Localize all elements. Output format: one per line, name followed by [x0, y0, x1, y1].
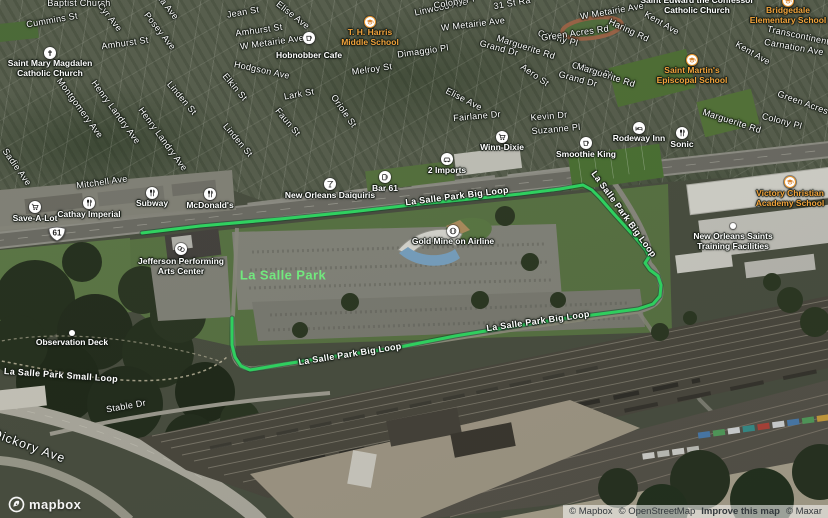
street-label-colony-pl: Colony Pl — [761, 111, 803, 131]
poi-label: T. H. HarrisMiddle School — [341, 28, 399, 47]
street-label-layer: Baptist ChurchCummins Stma AveCyr AvePos… — [0, 0, 828, 518]
street-label-sadie-ave: Sadie Ave — [1, 146, 34, 187]
street-label-31-st-ra: 31 St Ra — [493, 0, 532, 11]
attribution-link-maxar[interactable]: © Maxar — [786, 506, 822, 517]
dot-icon — [730, 223, 736, 229]
attribution-link-openstreetmap[interactable]: © OpenStreetMap — [619, 506, 696, 517]
scattered-trees — [292, 206, 828, 518]
ball-icon — [447, 225, 459, 237]
route-label-la-salle-park-big-loop: La Salle Park Big Loop — [486, 309, 591, 333]
route-label-la-salle-park-big-loop: La Salle Park Big Loop — [589, 169, 658, 259]
forest-southwest — [0, 242, 260, 466]
south-yards — [0, 386, 828, 518]
cap-icon — [364, 16, 376, 28]
street-label-linden-st: Linden St — [165, 79, 199, 117]
street-label-lark-st: Lark St — [283, 86, 315, 101]
poi-label: Cathay Imperial — [57, 210, 120, 220]
poi-label: Victory ChristianAcademy School — [756, 189, 825, 208]
sports-fields — [365, 14, 759, 191]
cross-icon — [44, 47, 56, 59]
dot-icon — [69, 330, 75, 336]
poi-label: Gold Mine on Airline — [412, 237, 494, 247]
street-label-green-acres-rd: Green Acres Rd — [776, 89, 828, 122]
commercial-strip — [0, 146, 661, 244]
railroad — [138, 296, 828, 518]
poi-label: Observation Deck — [36, 338, 108, 348]
poi-label: Winn-Dixie — [480, 143, 524, 153]
street-label-ma-ave: ma Ave — [153, 0, 180, 22]
street-label-henry-landry-ave: Henry Landry Ave — [90, 78, 143, 146]
trails — [0, 336, 228, 381]
street-label-haring-rd: Haring Rd — [607, 16, 650, 43]
mapbox-logo[interactable]: mapbox — [8, 496, 81, 513]
street-label-suzanne-pl: Suzanne Pl — [531, 122, 581, 136]
stadium — [398, 215, 494, 266]
street-label-linwood-ave: Linwood Ave — [413, 0, 468, 18]
street-label-dimaggio-pl: Dimaggio Pl — [397, 42, 450, 59]
attribution-link-improve-this-map[interactable]: Improve this map — [701, 506, 780, 517]
poi-label: Bar 61 — [372, 184, 398, 194]
street-label-w-metairie-ave: W Metairie Ave — [440, 15, 505, 33]
street-label-fairlane-dr: Fairlane Dr — [453, 109, 502, 123]
saints-facility — [675, 167, 828, 278]
street-label-colony-pl: Colony Pl — [433, 0, 475, 11]
poi-label: Subway — [136, 199, 168, 209]
poi-label: Save-A-Lot — [13, 214, 58, 224]
street-label-carnation-ave: Carnation Ave — [763, 37, 824, 57]
poi-label: New Orleans Daiquiris — [285, 191, 375, 201]
street-label-elkin-st: Elkin St — [221, 71, 250, 103]
route-outline — [142, 185, 661, 370]
attribution-link-mapbox[interactable]: © Mapbox — [569, 506, 612, 517]
poi-label: Saint Mary MagdalenCatholic Church — [8, 59, 93, 78]
street-label-oriole-st: Oriole St — [329, 93, 359, 130]
poi-label: 2 Imports — [428, 166, 466, 176]
street-label-amhurst-st: Amhurst St — [101, 35, 149, 52]
poi-layer: Save-A-LotCathay ImperialSubwayMcDonald'… — [0, 0, 828, 518]
street-label-linden-st: Linden St — [221, 121, 255, 159]
street-label-stable-dr: Stable Dr — [105, 398, 146, 415]
street-label-mitchell-ave: Mitchell Ave — [76, 173, 128, 190]
poi-label: Hobnobber Cafe — [276, 51, 342, 61]
attribution-bar: © Mapbox© OpenStreetMapImprove this map©… — [563, 505, 828, 518]
street-label-baptist-church: Baptist Church — [47, 0, 110, 8]
cart-icon — [29, 201, 41, 213]
containers — [640, 414, 828, 459]
satellite-imagery — [0, 0, 828, 518]
shield-number: 61 — [53, 229, 62, 238]
car-icon — [441, 153, 453, 165]
map-canvas[interactable]: Baptist ChurchCummins Stma AveCyr AvePos… — [0, 0, 828, 518]
street-label-transcontinental: Transcontinental — [766, 24, 828, 49]
fork-icon — [676, 127, 688, 139]
street-label-cyr-ave: Cyr Ave — [96, 1, 124, 34]
poi-label: Sonic — [670, 140, 693, 150]
street-label-dickory-ave: Dickory Ave — [0, 426, 67, 465]
mapbox-logo-icon — [8, 496, 25, 513]
street-label-elise-ave: Elise Ave — [274, 0, 311, 31]
street-label-w-metairie-ave: W Metairie Ave — [239, 33, 304, 52]
cocktail-icon — [324, 178, 336, 190]
street-label-marguerite-rd: Marguerite Rd — [701, 107, 762, 135]
beer-icon — [379, 171, 391, 183]
street-label-grand-dr: Grand Dr — [558, 69, 599, 89]
poi-label: New Orleans SaintsTraining Facilities — [693, 232, 772, 251]
residential-texture — [0, 0, 828, 518]
park-label-la-salle-park: La Salle Park — [240, 268, 326, 283]
street-label-melroy-st: Melroy St — [351, 61, 393, 77]
street-label-kevin-dr: Kevin Dr — [530, 109, 568, 122]
street-label-posey-ave: Posey Ave — [142, 10, 178, 52]
route-label-la-salle-park-small-loop: La Salle Park Small Loop — [4, 366, 119, 384]
street-label-aero-st: Aero St — [519, 62, 551, 89]
street-label-w-metairie-ave: W Metairie Ave — [579, 0, 644, 21]
street-label-cummins-st: Cummins St — [26, 11, 79, 30]
poi-label: Rodeway Inn — [613, 134, 665, 144]
route-label-la-salle-park-big-loop: La Salle Park Big Loop — [298, 341, 402, 367]
poi-label: BridgedaleElementary School — [750, 6, 827, 25]
cap-icon — [686, 54, 698, 66]
poi-label: Saint Edward the ConfessorCatholic Churc… — [640, 0, 753, 15]
poi-label: Jefferson PerformingArts Center — [138, 257, 224, 276]
street-label-amhurst-st: Amhurst St — [235, 22, 283, 39]
masks-icon — [175, 243, 187, 255]
street-label-elise-ave: Elise Ave — [444, 86, 484, 113]
street-label-grand-dr: Grand Dr — [479, 38, 520, 58]
mapbox-logo-text: mapbox — [29, 497, 81, 512]
us-61-shield: 61 — [47, 226, 67, 242]
poi-label: McDonald's — [186, 201, 233, 211]
street-label-hodgson-ave: Hodgson Ave — [233, 59, 291, 81]
fork-icon — [83, 197, 95, 209]
greens — [0, 20, 672, 346]
fork-icon — [146, 187, 158, 199]
street-label-colony-pl: Colony Pl — [571, 60, 613, 80]
street-label-montgomery-ave: Montgomery Ave — [55, 76, 105, 140]
street-label-kent-ave: Kent Ave — [643, 9, 681, 37]
street-label-jean-st: Jean St — [226, 4, 260, 20]
street-label-colony-pl: Colony Pl — [537, 28, 579, 48]
street-label-kent-ave: Kent Ave — [734, 39, 772, 67]
street-label-marguerite-rd: Marguerite Rd — [495, 33, 556, 61]
cup-icon — [303, 32, 315, 44]
cap-icon — [782, 0, 794, 7]
street-label-green-acres-rd: Green Acres Rd — [541, 23, 610, 42]
street-label-marguerite-rd: Marguerite Rd — [575, 61, 636, 89]
fork-icon — [204, 188, 216, 200]
route-label-la-salle-park-big-loop: La Salle Park Big Loop — [405, 185, 510, 208]
poi-label: Smoothie King — [556, 150, 616, 160]
cap-icon — [784, 176, 796, 188]
atmosphere-tint — [0, 0, 828, 518]
poi-label: Saint Martin'sEpiscopal School — [657, 66, 728, 85]
bed-icon — [633, 122, 645, 134]
cart-icon — [496, 131, 508, 143]
parking-lots — [150, 224, 645, 341]
route-overlay — [0, 0, 828, 518]
cup-icon — [580, 137, 592, 149]
route-la-salle-park-big-loop — [142, 185, 661, 370]
roads — [0, 149, 828, 518]
street-label-faun-st: Faun St — [273, 106, 302, 138]
street-label-henry-landry-ave: Henry Landry Ave — [137, 105, 190, 173]
